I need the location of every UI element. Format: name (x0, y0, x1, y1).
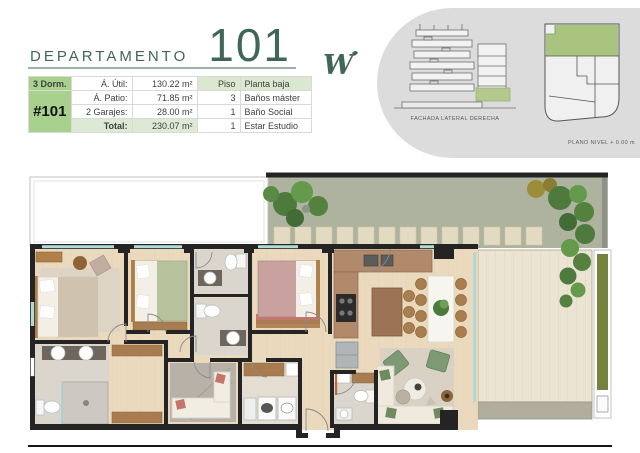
study-room (170, 363, 236, 422)
bed (258, 260, 320, 318)
dresser (36, 252, 62, 262)
cell-label: Á. Patio: (71, 91, 132, 105)
highlighted-unit-elevation (476, 88, 510, 101)
deck-terrace (478, 250, 611, 419)
cabinet (244, 363, 284, 376)
side-table (73, 256, 87, 270)
wardrobe (133, 322, 187, 330)
table-row: 3 Dorm. Á. Útil: 130.22 m² Piso Planta b… (29, 77, 312, 91)
cell-label: Total: (71, 119, 132, 133)
side-grass-strip (597, 254, 608, 390)
unit-badge: #101 (29, 91, 72, 133)
floor-plan-sheet: DEPARTAMENTO 101 3 Dorm. Á. Útil: 130.22… (0, 0, 640, 453)
cell-count: 1 (197, 119, 240, 133)
title-label: DEPARTAMENTO (30, 48, 188, 65)
cell-value: 28.00 m² (132, 105, 197, 119)
patio-area (30, 177, 268, 246)
cell-count: 1 (197, 105, 240, 119)
cell-value: 130.22 m² (132, 77, 197, 91)
page-title: DEPARTAMENTO 101 (30, 22, 291, 68)
sink (364, 255, 378, 266)
siteplan-caption: PLANO NIVEL + 0.00 m (517, 140, 635, 146)
toilet (225, 254, 237, 270)
cell-label: 2 Garajes: (71, 105, 132, 119)
footer-rule (28, 445, 612, 447)
brand-logo: W (322, 46, 360, 84)
cell-desc: Baño Social (240, 105, 311, 119)
cell-count: 3 (197, 91, 240, 105)
brand-letter: W (323, 50, 356, 81)
toilet (44, 401, 60, 413)
title-divider (28, 67, 296, 69)
island (372, 288, 415, 336)
wardrobe (112, 412, 162, 423)
cell-value: 230.07 m² (132, 119, 197, 133)
cell-desc: Planta baja (240, 77, 311, 91)
table-row: #101 Á. Patio: 71.85 m² 3 Baños máster (29, 91, 312, 105)
wardrobe (112, 345, 162, 356)
elevation-caption: FACHADA LATERAL DERECHA (390, 116, 520, 122)
bench (256, 320, 320, 328)
unit-number: 101 (208, 22, 291, 68)
bed (131, 260, 187, 322)
washer (258, 397, 276, 420)
cell-count: Piso (197, 77, 240, 91)
building-elevation-drawing (390, 22, 520, 114)
utility-sink (244, 398, 256, 420)
cell-desc: Baños máster (240, 91, 311, 105)
cell-desc: Estar Estudio (240, 119, 311, 133)
sink (227, 332, 240, 345)
bed (34, 276, 98, 338)
cell-value: 71.85 m² (132, 91, 197, 105)
table-row: Total: 230.07 m² 1 Estar Estudio (29, 119, 312, 133)
highlighted-unit-plan (546, 25, 618, 56)
spec-table: 3 Dorm. Á. Útil: 130.22 m² Piso Planta b… (28, 76, 312, 133)
key-panel: FACHADA LATERAL DERECHA PLANO NIVEL + 0.… (377, 8, 640, 158)
toilet (354, 391, 368, 402)
table-row: 2 Garajes: 28.00 m² 1 Baño Social (29, 105, 312, 119)
door-leaf (335, 374, 337, 395)
cell-label: Á. Útil: (71, 77, 132, 91)
toilet (204, 305, 220, 317)
sliding-glass-door (473, 252, 476, 402)
bedroom-3 (256, 260, 320, 328)
bedroom-2 (131, 260, 187, 330)
floor-plan-drawing (24, 170, 640, 442)
cooktop (336, 294, 356, 322)
dryer (278, 397, 296, 420)
cell-dorms: 3 Dorm. (29, 77, 72, 91)
sink (204, 272, 216, 284)
site-key-plan (539, 18, 625, 136)
